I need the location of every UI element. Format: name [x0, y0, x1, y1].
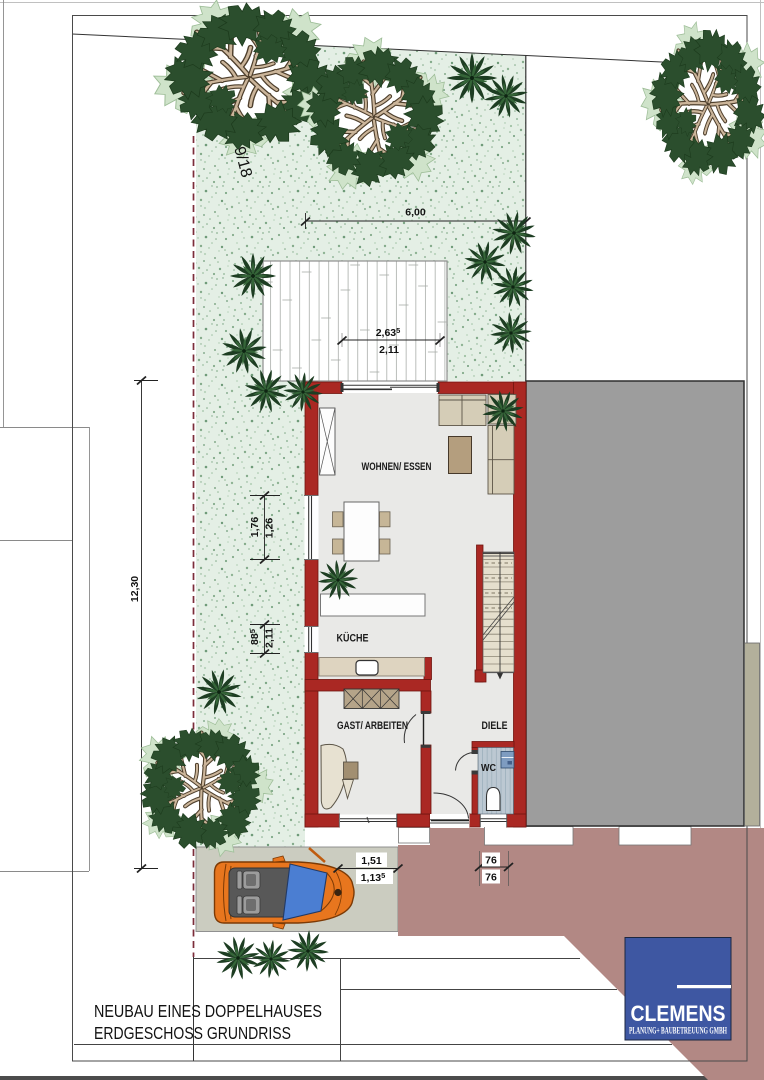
svg-text:76: 76 — [485, 872, 497, 884]
svg-text:CLEMENS: CLEMENS — [631, 1001, 726, 1026]
svg-text:6,00: 6,00 — [405, 207, 426, 219]
svg-text:1,51: 1,51 — [361, 855, 382, 867]
svg-text:NEUBAU EINES DOPPELHAUSES: NEUBAU EINES DOPPELHAUSES — [94, 1001, 322, 1021]
svg-text:76: 76 — [485, 855, 497, 867]
svg-text:2,11: 2,11 — [379, 344, 399, 356]
svg-text:ERDGESCHOSS GRUNDRISS: ERDGESCHOSS GRUNDRISS — [94, 1023, 291, 1043]
svg-text:PLANUNG+ BAUBETREUUNG GMBH: PLANUNG+ BAUBETREUUNG GMBH — [629, 1026, 727, 1036]
svg-text:DIELE: DIELE — [482, 720, 508, 732]
svg-text:GAST/ ARBEITEN: GAST/ ARBEITEN — [337, 720, 408, 732]
svg-text:2,11: 2,11 — [264, 628, 276, 648]
svg-text:1,76: 1,76 — [249, 517, 261, 538]
svg-text:WC: WC — [481, 763, 496, 774]
svg-text:12,30: 12,30 — [129, 576, 141, 602]
svg-text:1,26: 1,26 — [264, 518, 276, 539]
svg-text:WOHNEN/ ESSEN: WOHNEN/ ESSEN — [362, 461, 432, 473]
svg-text:KÜCHE: KÜCHE — [337, 632, 369, 645]
